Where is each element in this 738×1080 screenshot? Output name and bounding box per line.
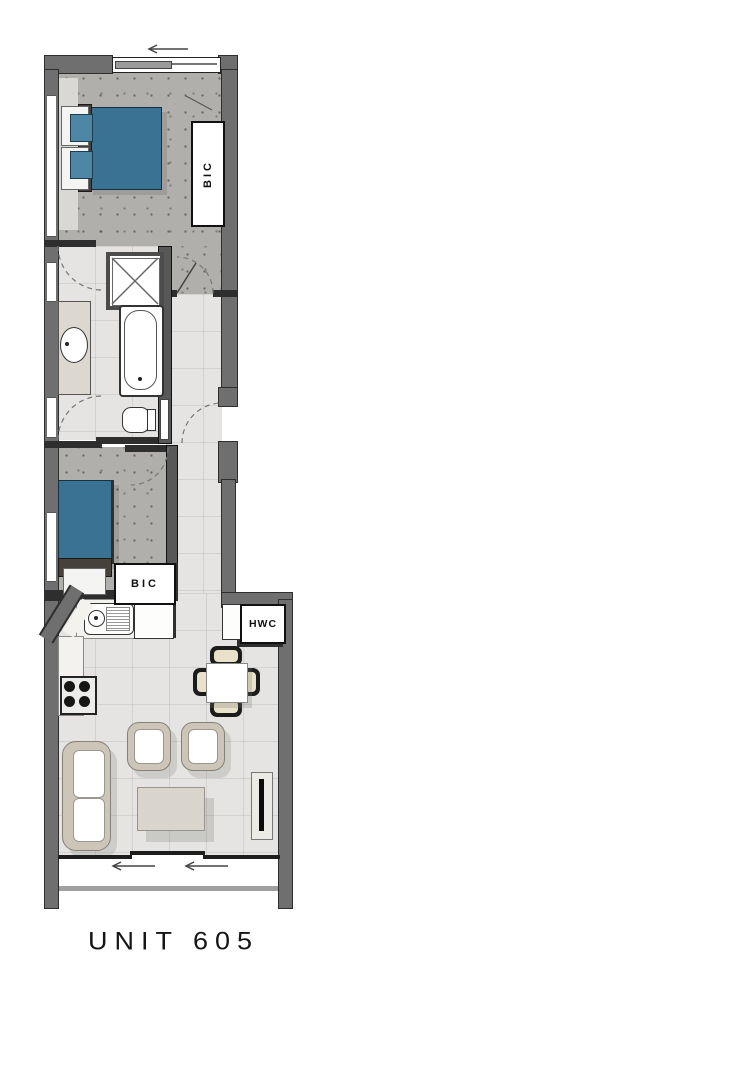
- unit-title: UNIT 605: [88, 927, 259, 956]
- bathtub-drain: [138, 377, 142, 381]
- basin-drain: [65, 342, 69, 346]
- sink-drain: [94, 616, 98, 620]
- sliding-door-panel: [130, 851, 205, 855]
- toilet: [122, 407, 150, 433]
- armchair-cushion: [188, 729, 218, 764]
- toilet-cistern: [147, 409, 156, 431]
- bic-second-label: BIC: [131, 578, 159, 590]
- window-main-bedroom: [47, 95, 56, 237]
- stove-burner: [79, 696, 90, 707]
- kitchen-cabinet: [134, 599, 174, 639]
- shower-tray: [112, 258, 160, 306]
- sofa-cushion: [73, 798, 105, 842]
- coffee-table: [137, 787, 205, 831]
- window-second-bedroom: [47, 512, 56, 582]
- wall-right-upper: [222, 70, 237, 388]
- armchair: [181, 722, 225, 771]
- balcony-edge: [45, 886, 292, 891]
- floor-plan: BIC BIC HWC: [0, 0, 738, 1080]
- chair-cushion: [214, 650, 238, 662]
- wall-bathroom-top: [45, 240, 96, 247]
- wall-right-jamb-top: [219, 388, 237, 406]
- stove-burner: [64, 681, 75, 692]
- utility-closet: [222, 604, 241, 640]
- tv-screen: [259, 779, 264, 831]
- wall-right-mid: [222, 480, 235, 595]
- wall-right-jamb-bottom: [219, 442, 237, 482]
- bic-main-label: BIC: [202, 160, 214, 188]
- armchair: [127, 722, 171, 771]
- balcony-floor: [58, 855, 279, 888]
- built-in-cupboard-second: BIC: [114, 563, 176, 605]
- basin: [60, 327, 88, 363]
- wall-hall-top-right: [213, 290, 238, 297]
- stove-burner: [64, 696, 75, 707]
- slide-arrow-icon: [149, 45, 188, 53]
- bathroom-hall-niche: [160, 399, 169, 440]
- pillow: [70, 151, 93, 179]
- window-bathroom-lower: [47, 397, 56, 438]
- double-bed: [88, 107, 162, 190]
- built-in-cupboard-main: BIC: [191, 121, 225, 227]
- dining-table: [206, 663, 248, 703]
- wall-second-bedroom-hall: [166, 445, 178, 567]
- sofa-cushion: [73, 750, 105, 798]
- sink-drainer: [106, 607, 130, 631]
- stove-burner: [79, 681, 90, 692]
- single-bed: [58, 480, 114, 564]
- hwc-label: HWC: [249, 618, 277, 630]
- sliding-window-panel: [115, 61, 172, 69]
- armchair-cushion: [134, 729, 164, 764]
- sliding-window-rail: [172, 63, 217, 65]
- wall-bathroom-bottom: [96, 437, 158, 444]
- wall-second-bedroom-top-left: [45, 441, 102, 448]
- hot-water-cylinder-closet: HWC: [240, 604, 286, 644]
- window-bathroom-upper: [47, 262, 56, 302]
- sliding-door-track: [58, 855, 132, 859]
- sofa: [62, 741, 111, 851]
- nightstand: [63, 568, 106, 595]
- sliding-door-track: [203, 855, 280, 859]
- pillow: [70, 114, 93, 142]
